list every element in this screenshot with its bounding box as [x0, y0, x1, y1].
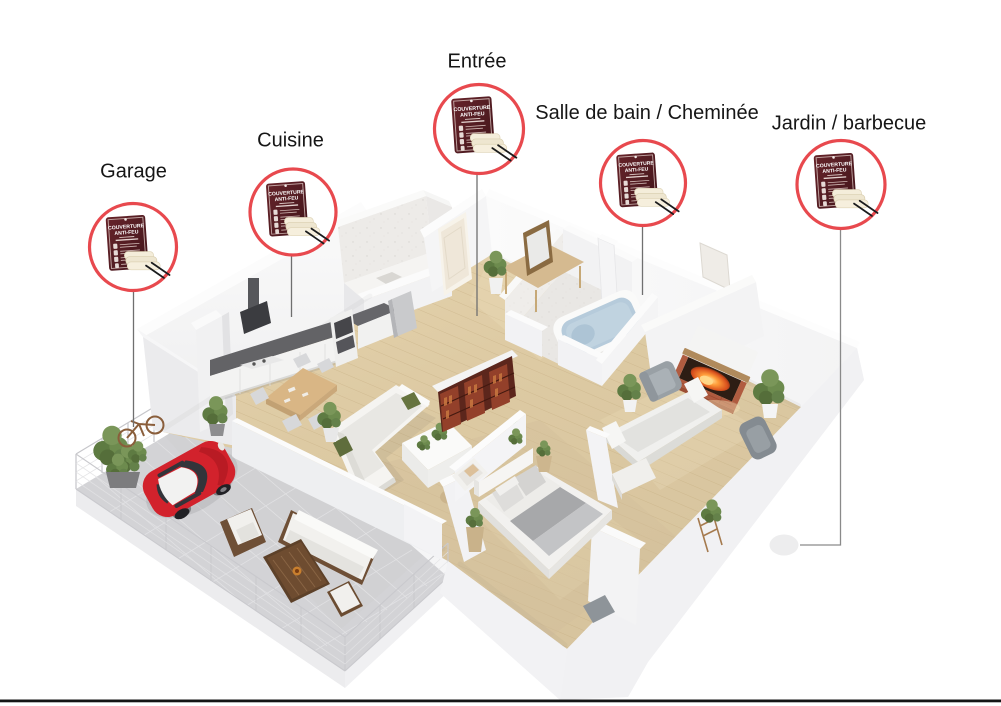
svg-text:Garage: Garage [100, 161, 167, 183]
svg-text:Cuisine: Cuisine [257, 130, 324, 152]
svg-text:Salle de bain / Cheminée: Salle de bain / Cheminée [535, 102, 758, 124]
svg-text:Jardin / barbecue: Jardin / barbecue [772, 113, 927, 135]
svg-text:Entrée: Entrée [448, 51, 507, 73]
